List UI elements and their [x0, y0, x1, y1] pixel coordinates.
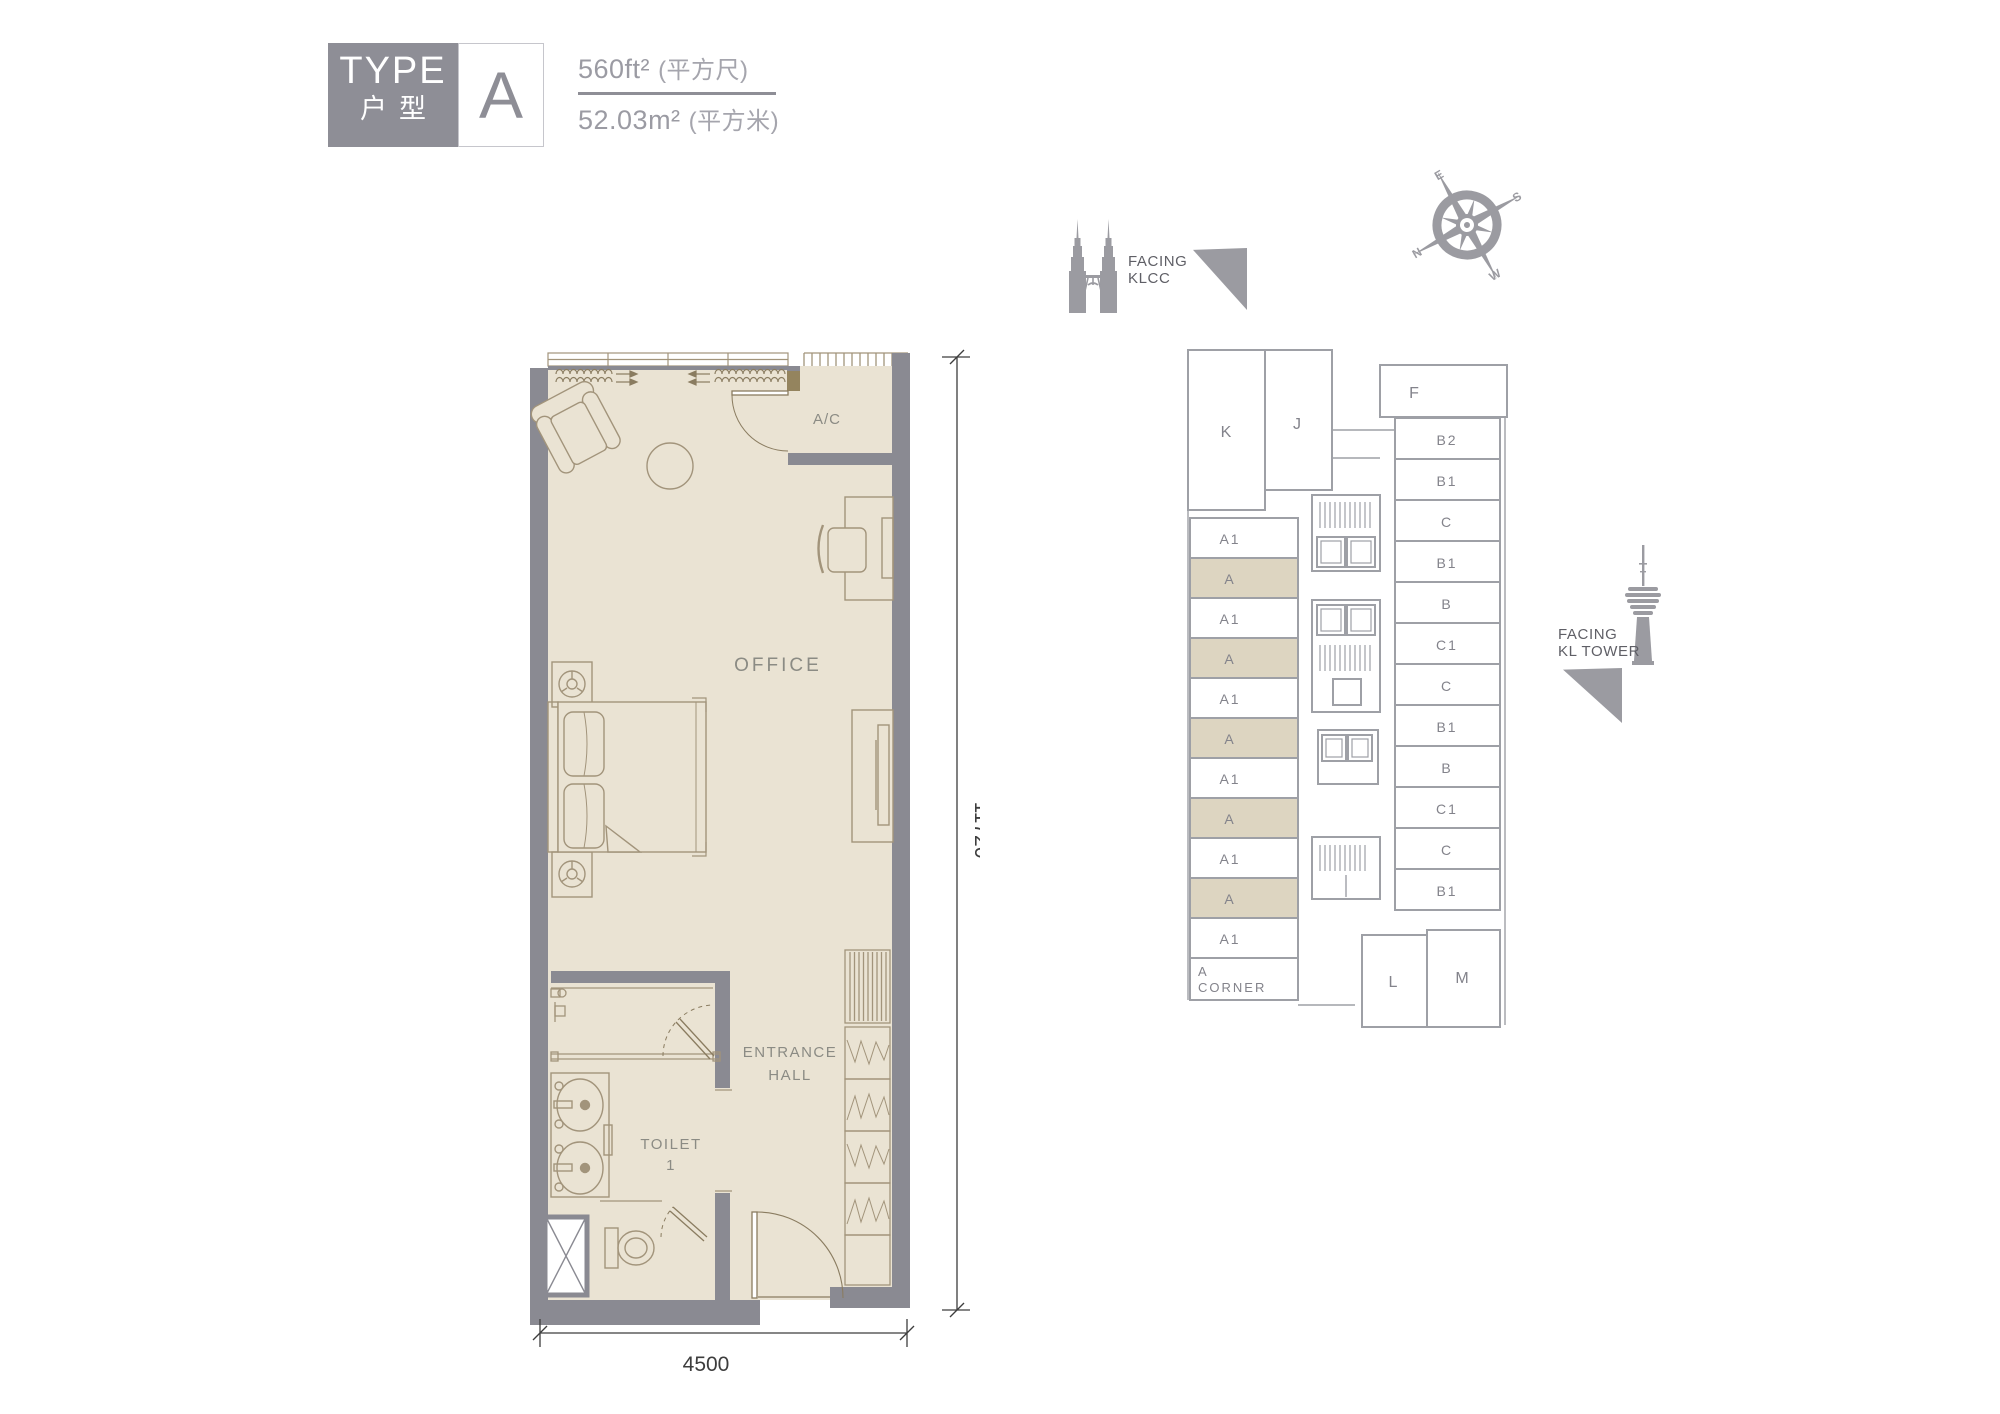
area-block: 560ft² (平方尺) 52.03m² (平方米)	[578, 50, 779, 136]
keyplan-core	[1312, 495, 1380, 899]
type-label-cn: 户型	[328, 92, 458, 126]
window-strip	[548, 353, 788, 366]
keyplan-label-f: F	[1409, 385, 1421, 402]
keyplan-unit-label: A1	[1219, 611, 1240, 627]
area-divider	[578, 92, 776, 95]
keyplan-unit-label: A	[1224, 891, 1235, 907]
room-label-ac: A/C	[813, 411, 841, 428]
type-label-en: TYPE	[328, 50, 458, 92]
area-imperial: 560ft² (平方尺)	[578, 50, 779, 85]
keyplan-right-column	[1395, 418, 1500, 910]
key-plan: K J F L M A1 A A1 A A1 A A1 A A1 A A1 B2…	[1185, 345, 1520, 1045]
keyplan-unit-label: A	[1224, 571, 1235, 587]
keyplan-unit-label: B1	[1436, 719, 1457, 735]
compass-n: N	[1410, 245, 1425, 261]
keyplan-block-f	[1380, 365, 1507, 417]
facing-klcc-direction-triangle	[1193, 248, 1247, 310]
dimension-depth: 11720	[970, 802, 980, 859]
compass-icon: E S N W	[1392, 150, 1542, 300]
compass-w: W	[1487, 266, 1504, 284]
keyplan-corner-label-2: CORNER	[1198, 980, 1266, 995]
unit-type-badge: A	[458, 43, 544, 147]
keyplan-unit-label: C	[1441, 678, 1453, 694]
keyplan-unit-type-a	[1190, 638, 1298, 678]
keyplan-unit-label: A1	[1219, 691, 1240, 707]
room-label-entrance-2: HALL	[768, 1067, 812, 1084]
room-label-toilet-2: 1	[666, 1157, 676, 1174]
keyplan-unit-type-a	[1190, 718, 1298, 758]
keyplan-unit-label: A1	[1219, 931, 1240, 947]
keyplan-unit-label: A	[1224, 651, 1235, 667]
keyplan-corner-label-1: A	[1198, 964, 1209, 979]
area-metric: 52.03m² (平方米)	[578, 101, 779, 136]
dimension-line-vertical	[942, 350, 970, 1317]
keyplan-left-column	[1190, 518, 1298, 1000]
keyplan-unit-label: B1	[1436, 555, 1457, 571]
keyplan-unit-label: B1	[1436, 883, 1457, 899]
facing-kl-tower-label: FACING KL TOWER	[1558, 626, 1640, 660]
keyplan-unit-label: B1	[1436, 473, 1457, 489]
keyplan-unit-label: A	[1224, 811, 1235, 827]
keyplan-unit-label: B2	[1436, 432, 1457, 448]
keyplan-unit-label: A	[1224, 731, 1235, 747]
keyplan-label-k: K	[1221, 424, 1234, 441]
facing-kl-tower-direction-triangle	[1563, 668, 1622, 723]
tv-console-icon	[852, 710, 893, 842]
keyplan-label-l: L	[1389, 974, 1400, 991]
compass-s: S	[1510, 189, 1524, 205]
room-label-toilet-1: TOILET	[640, 1136, 701, 1153]
keyplan-unit-label: B	[1441, 760, 1452, 776]
keyplan-label-j: J	[1293, 416, 1303, 433]
keyplan-unit-label: C	[1441, 514, 1453, 530]
facing-klcc-line2: KLCC	[1128, 270, 1187, 287]
room-label-entrance-1: ENTRANCE	[743, 1044, 838, 1061]
type-box: TYPE 户型	[328, 43, 458, 147]
area-sqm-unit: (平方米)	[689, 108, 779, 135]
keyplan-unit-label: A1	[1219, 771, 1240, 787]
room-label-office: OFFICE	[734, 655, 822, 676]
keyplan-unit-label: C1	[1436, 801, 1458, 817]
klcc-twin-towers-icon	[1058, 213, 1128, 315]
keyplan-unit-label: A1	[1219, 531, 1240, 547]
facing-kl-tower-line2: KL TOWER	[1558, 643, 1640, 660]
facing-klcc-line1: FACING	[1128, 253, 1187, 270]
dimension-width: 4500	[683, 1353, 730, 1376]
area-sqft-value: 560ft²	[578, 54, 650, 84]
keyplan-unit-type-a	[1190, 798, 1298, 838]
keyplan-unit-label: C	[1441, 842, 1453, 858]
door-frame-block	[787, 371, 800, 391]
area-sqm-value: 52.03m²	[578, 105, 681, 135]
keyplan-label-m: M	[1455, 970, 1470, 987]
unit-type-letter: A	[479, 57, 523, 133]
elevator-icon	[1333, 679, 1361, 705]
keyplan-unit-label: A1	[1219, 851, 1240, 867]
keyplan-unit-type-a	[1190, 558, 1298, 598]
facing-klcc-label: FACING KLCC	[1128, 253, 1187, 287]
service-shaft-icon	[545, 1217, 587, 1295]
floorplan-page: TYPE 户型 A 560ft² (平方尺) 52.03m² (平方米) FAC…	[0, 0, 2000, 1414]
keyplan-unit-type-a	[1190, 878, 1298, 918]
keyplan-unit-label: B	[1441, 596, 1452, 612]
vanity-double-basin-icon	[551, 1073, 612, 1197]
bed-icon	[548, 698, 706, 856]
keyplan-unit-label: C1	[1436, 637, 1458, 653]
floor-plan: A/C OFFICE ENTRANCE HALL TOILET 1 11720 …	[510, 340, 980, 1414]
facing-kl-tower-line1: FACING	[1558, 626, 1640, 643]
compass-e: E	[1432, 167, 1446, 183]
area-sqft-unit: (平方尺)	[658, 57, 748, 84]
